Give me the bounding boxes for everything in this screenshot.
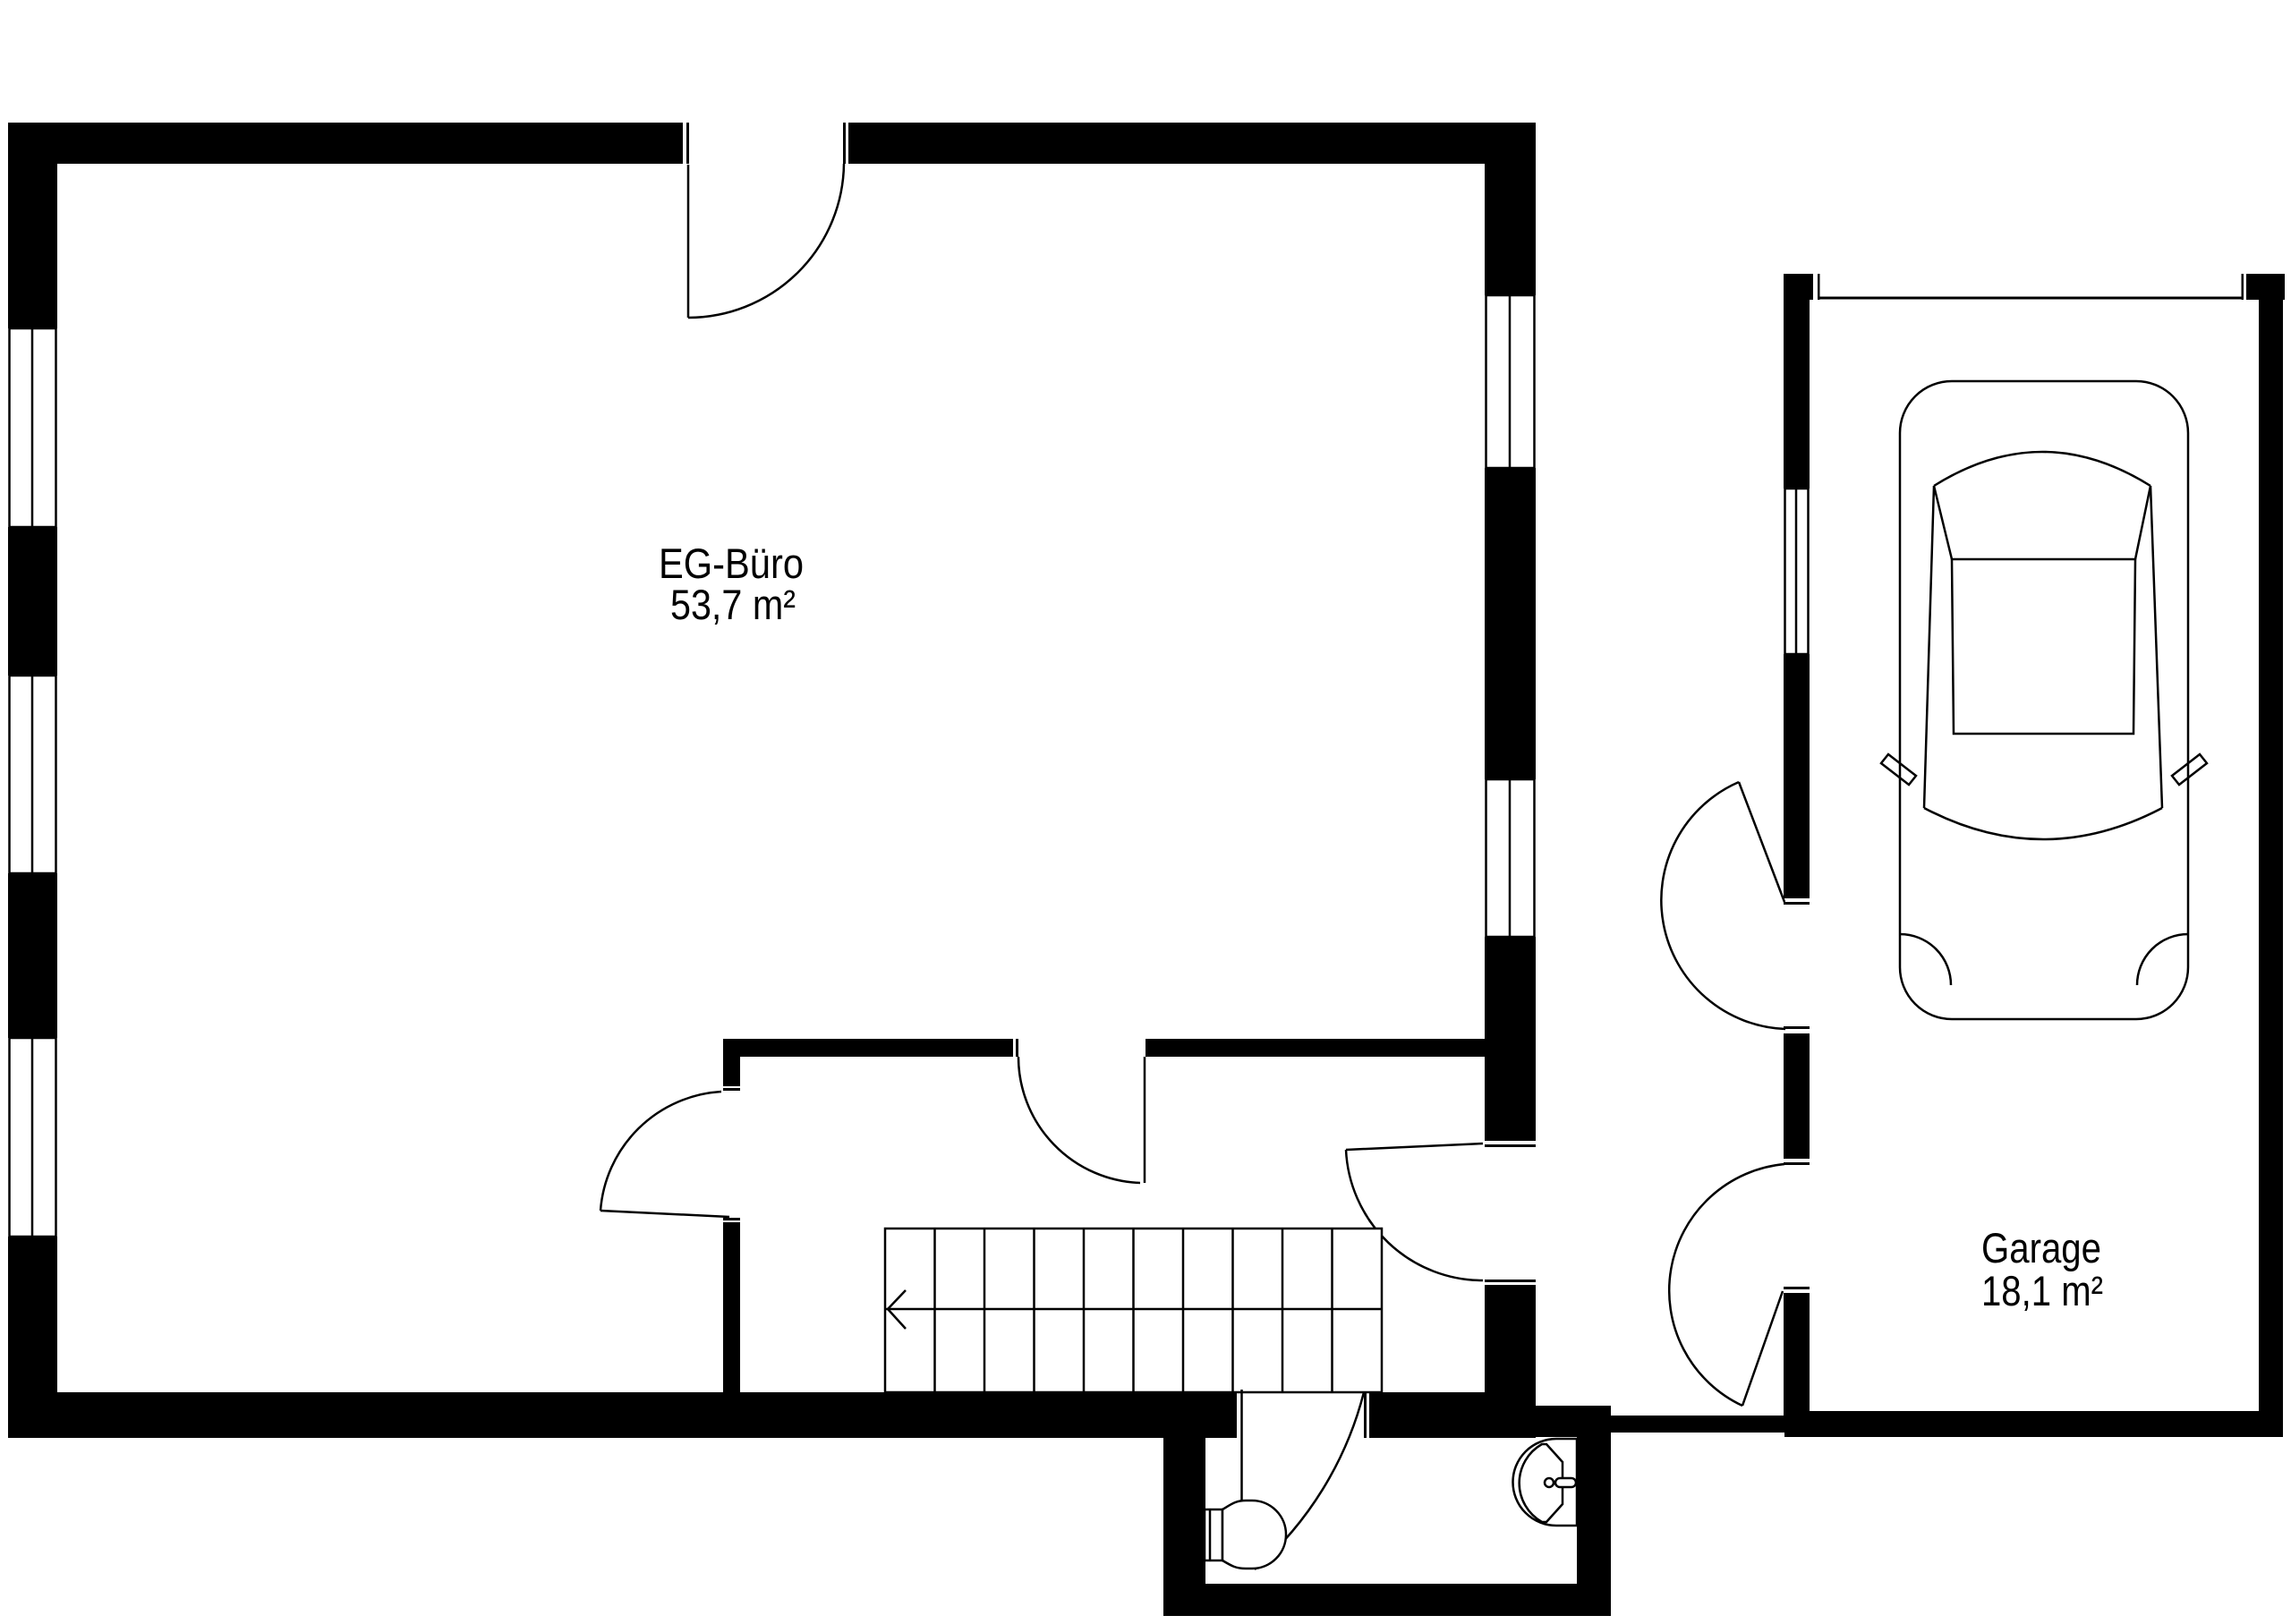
svg-text:18,1 m²: 18,1 m²: [1981, 1267, 2103, 1314]
svg-text:Garage: Garage: [1981, 1224, 2101, 1271]
svg-text:53,7 m²: 53,7 m²: [670, 581, 796, 628]
